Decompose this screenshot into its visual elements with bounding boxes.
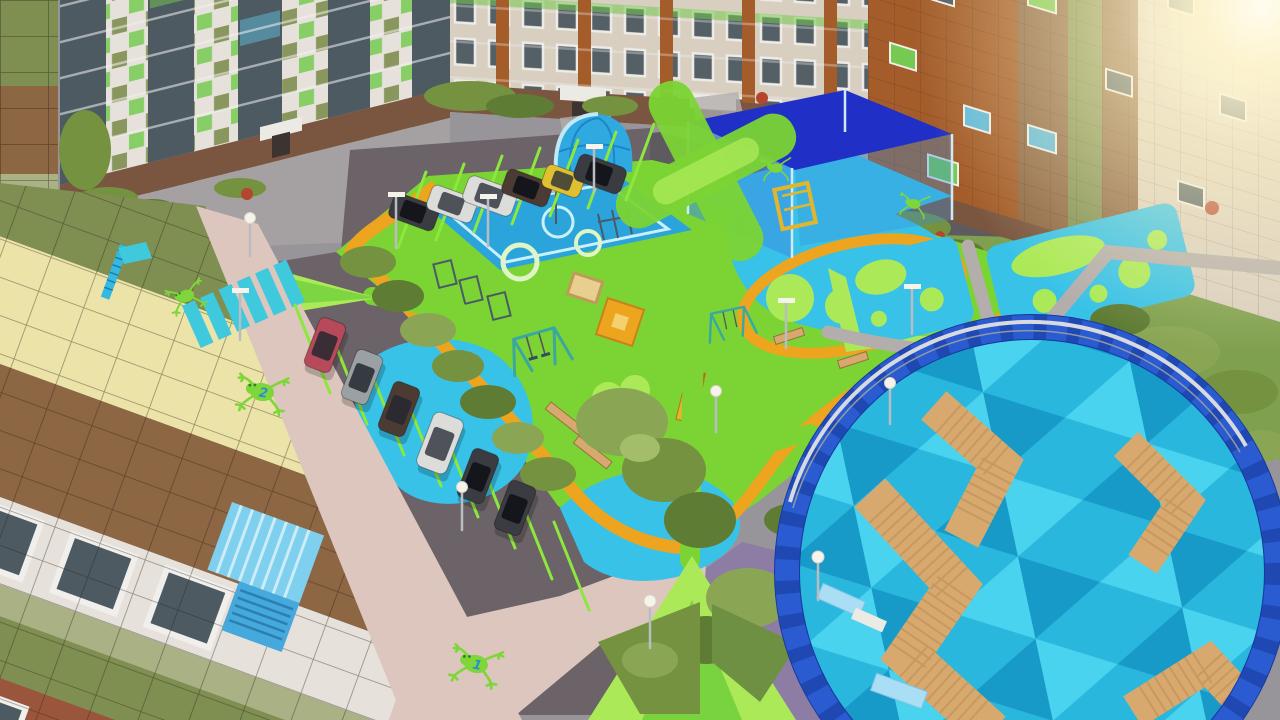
scene-canvas: 2 1 — [0, 0, 1280, 720]
red-shrub — [756, 92, 768, 104]
entrance-door — [272, 132, 290, 158]
street-greenery — [59, 110, 111, 190]
red-shrub — [241, 188, 253, 200]
courtyard-rendering: 2 1 — [0, 0, 1280, 720]
